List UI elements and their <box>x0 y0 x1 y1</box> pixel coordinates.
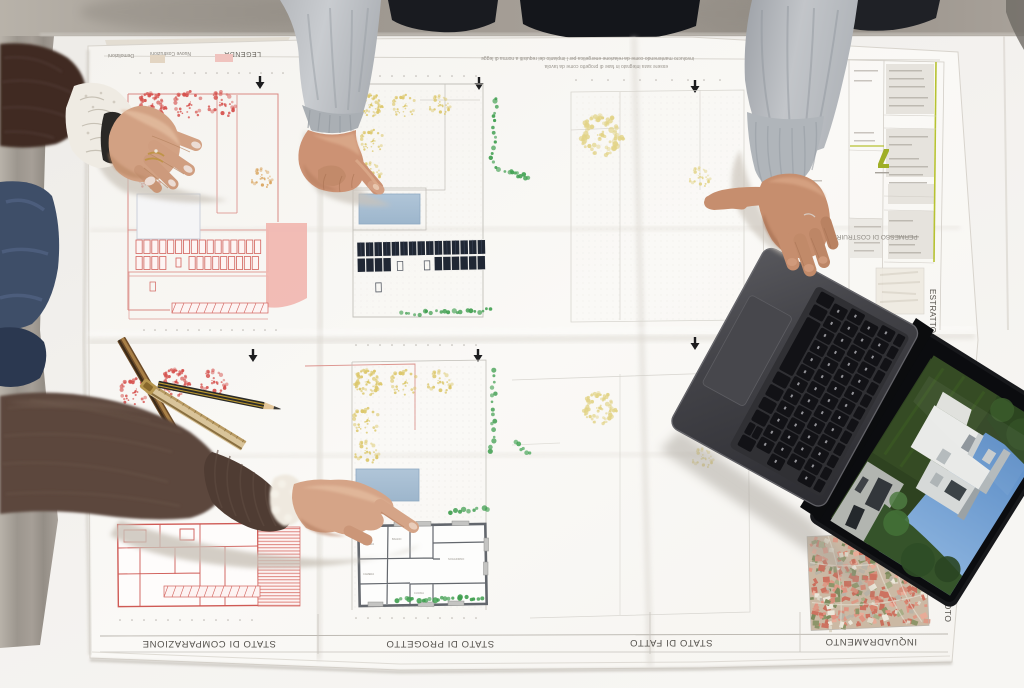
svg-text:STATO DI PROGETTO: STATO DI PROGETTO <box>386 638 494 649</box>
svg-text:CAMERA: CAMERA <box>363 572 374 576</box>
svg-text:INQUADRAMENTO: INQUADRAMENTO <box>825 636 917 647</box>
svg-text:BAGNO: BAGNO <box>392 537 401 541</box>
svg-text:ESTRATTO: ESTRATTO <box>928 289 937 333</box>
svg-text:CUCINA: CUCINA <box>414 591 424 595</box>
svg-text:SOGGIORNO: SOGGIORNO <box>448 557 464 561</box>
svg-text:STATO DI COMPARAZIONE: STATO DI COMPARAZIONE <box>142 638 276 649</box>
svg-text:involucro mantenendo come da r: involucro mantenendo come da relazione e… <box>481 55 694 61</box>
svg-text:essere sara integrato in fase: essere sara integrato in fase di progett… <box>544 63 668 69</box>
svg-text:PERMESSO DI COSTRUIRE: PERMESSO DI COSTRUIRE <box>832 233 918 240</box>
svg-text:STATO DI FATTO: STATO DI FATTO <box>630 637 713 648</box>
svg-text:Demolizioni: Demolizioni <box>108 52 134 58</box>
